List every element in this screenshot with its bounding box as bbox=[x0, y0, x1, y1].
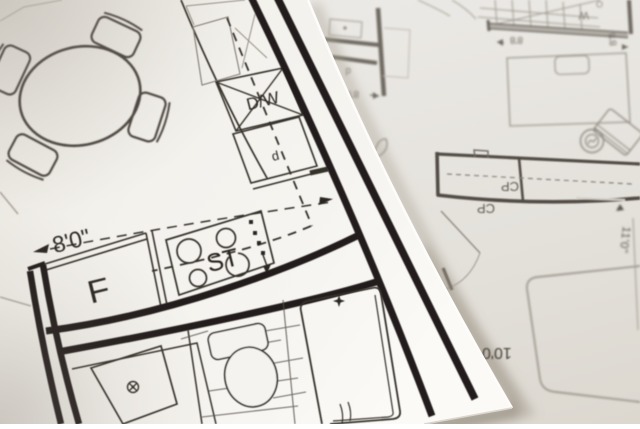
svg-text:8'8: 8'8 bbox=[510, 34, 523, 45]
svg-text:8'8: 8'8 bbox=[607, 32, 620, 47]
svg-text:CP: CP bbox=[477, 201, 495, 216]
svg-text:W: W bbox=[578, 9, 589, 21]
svg-text:CP: CP bbox=[501, 179, 519, 194]
svg-text:O: O bbox=[596, 0, 603, 9]
